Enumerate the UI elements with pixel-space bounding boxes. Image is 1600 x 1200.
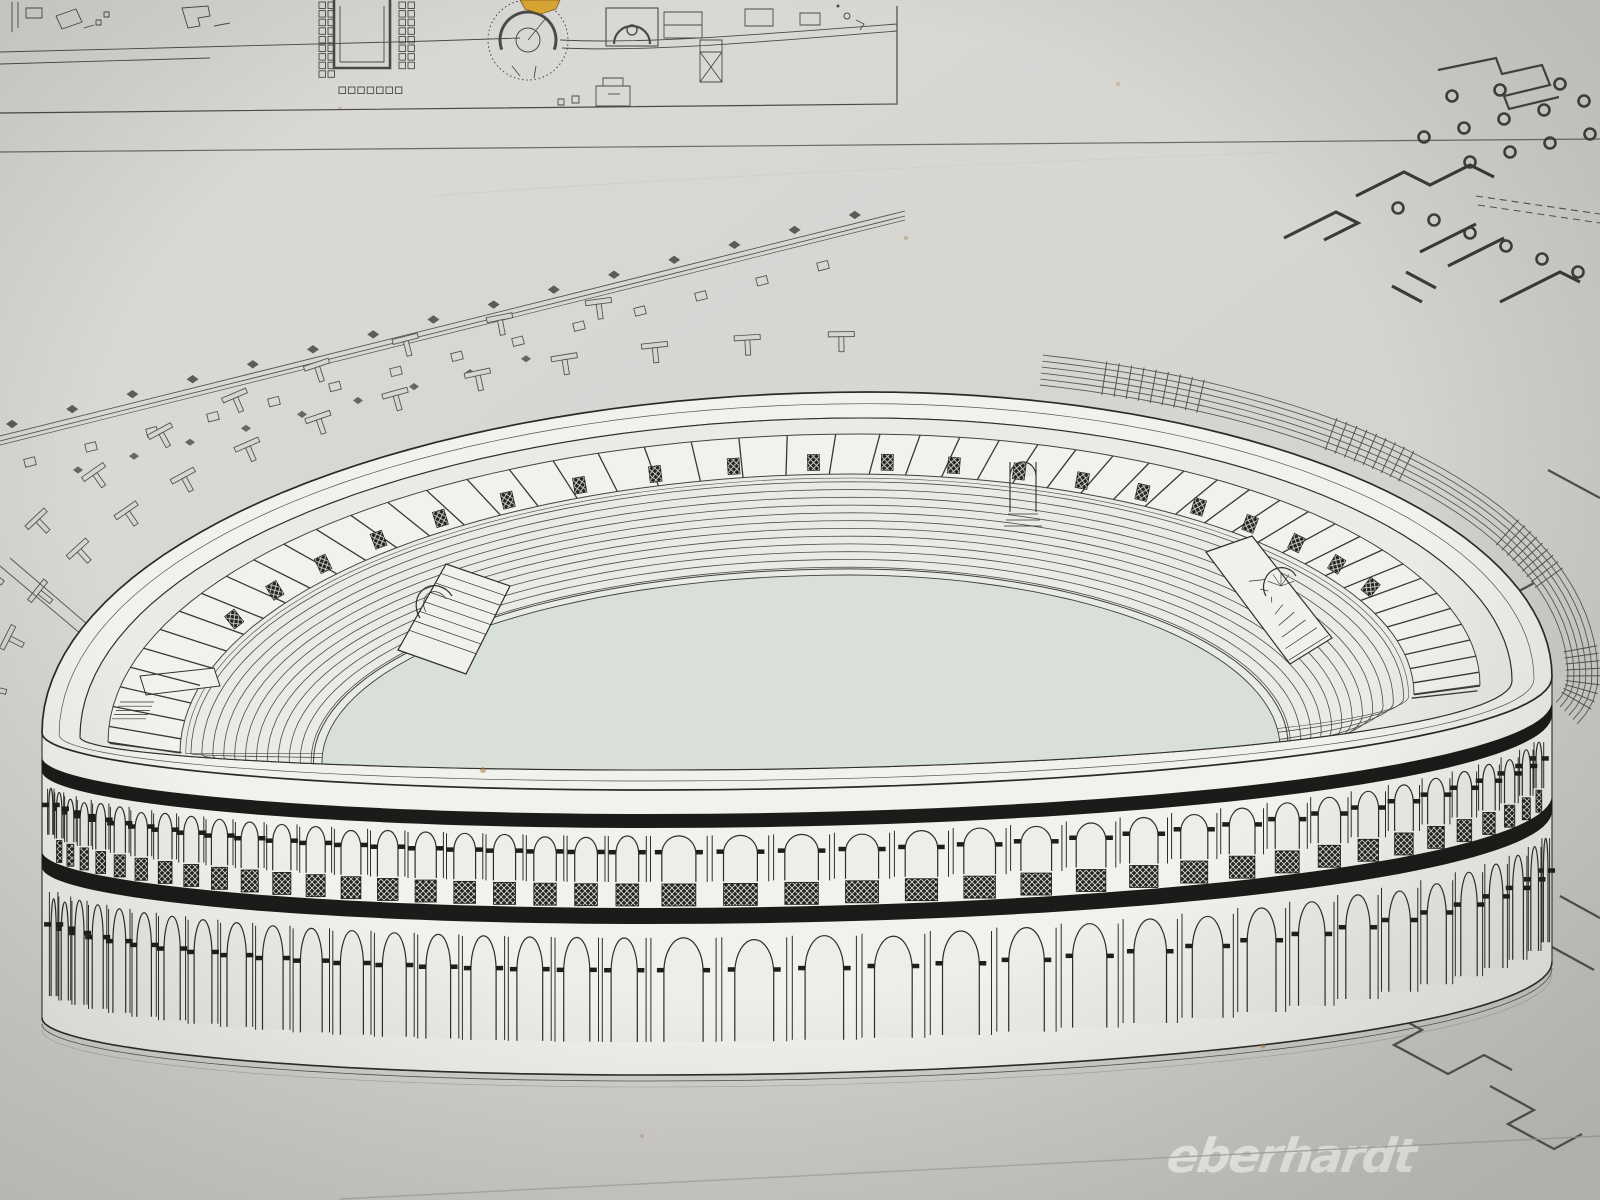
photo-overlay: eberhardt	[0, 0, 1600, 1200]
photo-vignette	[0, 0, 1600, 1200]
photographed-architectural-panel: eberhardt	[0, 0, 1600, 1200]
